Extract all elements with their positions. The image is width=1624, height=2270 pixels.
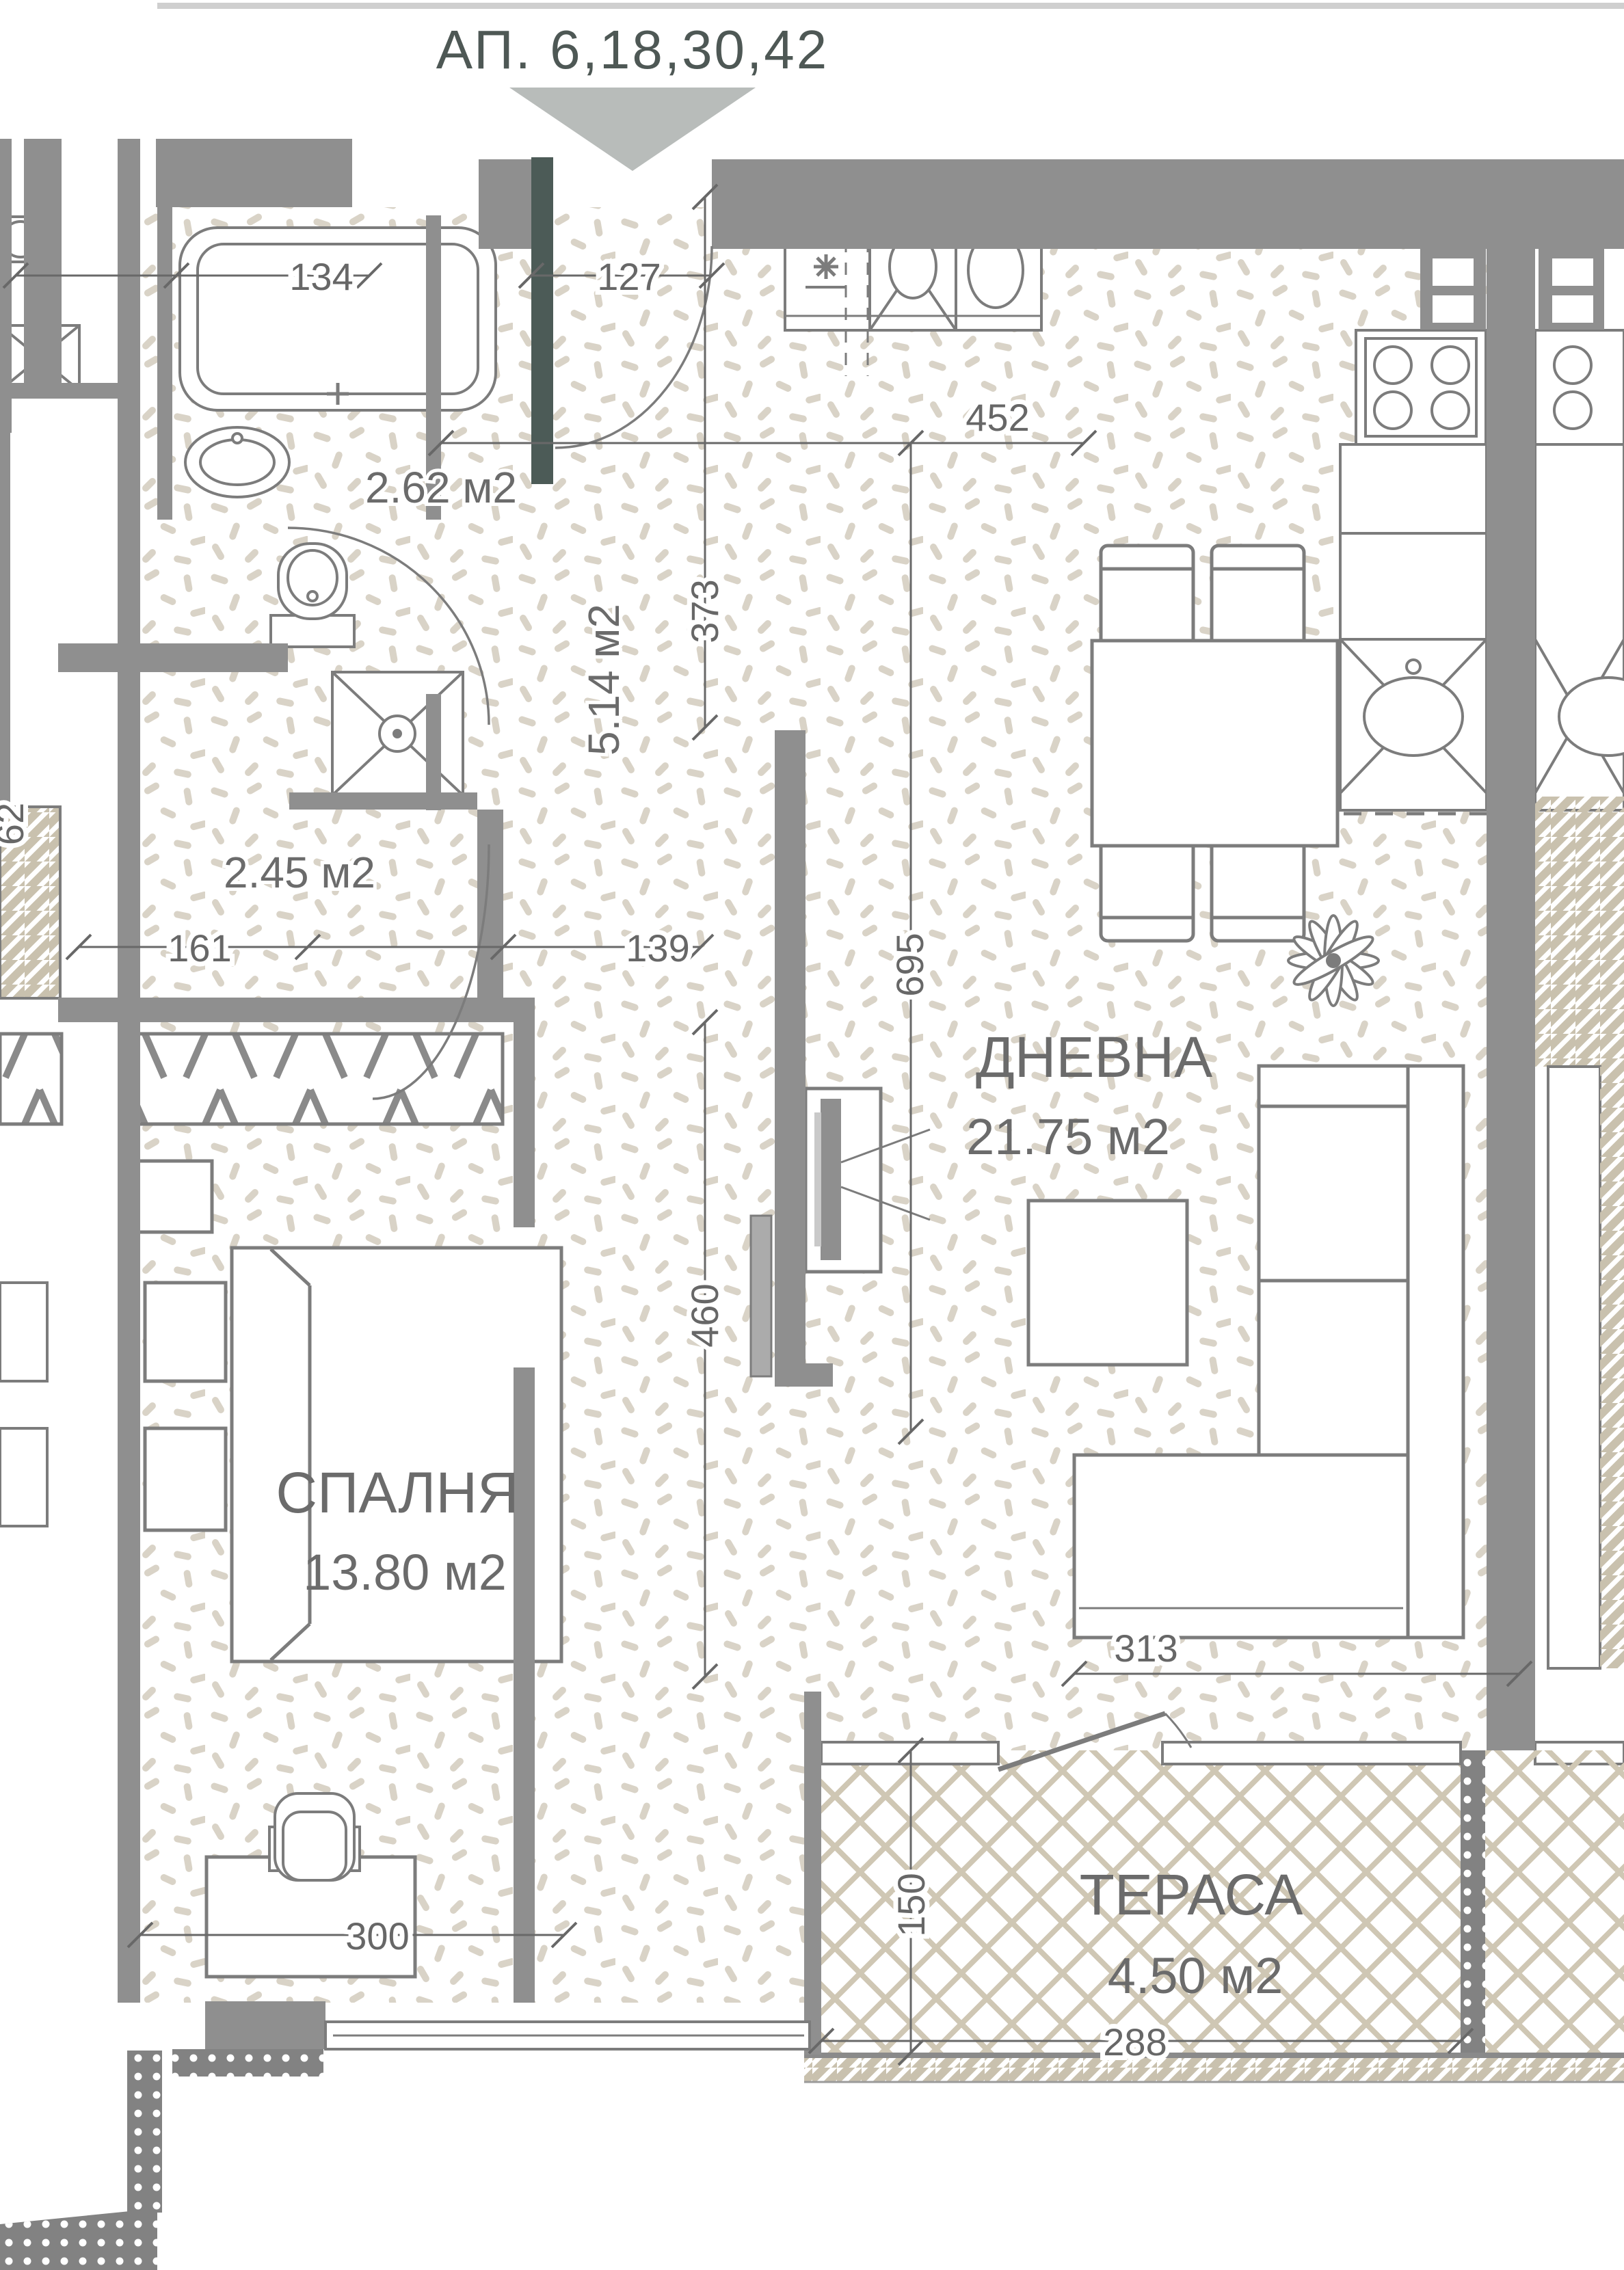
bedroom-window	[325, 2022, 810, 2049]
balcony-railings	[0, 2049, 323, 2270]
label-bedroom-name: СПАЛНЯ	[276, 1460, 518, 1525]
terrace-lattice-floor2	[1485, 1750, 1624, 2053]
party-wall	[1487, 249, 1535, 1750]
dim-161: 161	[168, 926, 231, 970]
dim-150: 150	[890, 1873, 933, 1936]
floor-plan-drawing: АП. 6,18,30,42	[0, 0, 1624, 2270]
kitchen-counter-side	[1340, 444, 1487, 814]
neighbor-right-kitchen	[1535, 330, 1624, 1764]
label-terrace-area: 4.50 м2	[1108, 1947, 1283, 2004]
sink-icon	[185, 427, 289, 497]
dim-452: 452	[966, 396, 1029, 439]
chair-icon	[1101, 837, 1193, 941]
label-living-name: ДНЕВНА	[976, 1025, 1212, 1089]
dim-139: 139	[626, 926, 689, 970]
neighbor-left	[0, 217, 79, 1526]
wardrobe-icon	[0, 1034, 503, 1124]
chair-icon	[1101, 546, 1193, 650]
label-bedroom-area: 13.80 м2	[303, 1544, 507, 1601]
dim-300: 300	[345, 1914, 409, 1958]
dim-127: 127	[597, 255, 661, 298]
terrace-edge-hatch	[804, 2058, 1624, 2081]
toilet-icon	[271, 544, 354, 647]
coffee-table-icon	[1028, 1201, 1187, 1365]
dining-set	[1092, 546, 1337, 941]
nightstand-icon	[145, 1283, 226, 1381]
chair-icon	[1212, 837, 1304, 941]
apartment-title: АП. 6,18,30,42	[436, 19, 829, 80]
label-living-area: 21.75 м2	[966, 1108, 1170, 1165]
dining-table-icon	[1092, 641, 1337, 846]
dim-460: 460	[683, 1283, 726, 1347]
desk-chair-icon	[269, 1793, 360, 1880]
dim-62: 62	[0, 803, 31, 845]
stove-icon	[1356, 330, 1486, 444]
top-border-line	[157, 3, 1624, 9]
partition-wall	[775, 730, 806, 1387]
label-terrace-name: ТЕРАСА	[1080, 1862, 1303, 1927]
shower-icon	[332, 672, 463, 795]
sideboard-icon	[751, 1216, 771, 1376]
dim-313: 313	[1114, 1627, 1177, 1670]
dim-288: 288	[1103, 2020, 1167, 2064]
dim-373: 373	[683, 579, 726, 643]
label-bathroom-area: 2.62 м2	[365, 463, 517, 512]
label-hall-area: 5.14 м2	[579, 604, 628, 756]
chair-icon	[1212, 546, 1304, 650]
entrance-door-leaf	[531, 157, 553, 484]
nightstand-icon	[145, 1428, 226, 1530]
dim-695: 695	[888, 933, 931, 996]
floor-plan-page: АП. 6,18,30,42	[0, 0, 1624, 2270]
label-wc-area: 2.45 м2	[224, 848, 375, 897]
dim-134: 134	[289, 255, 353, 298]
